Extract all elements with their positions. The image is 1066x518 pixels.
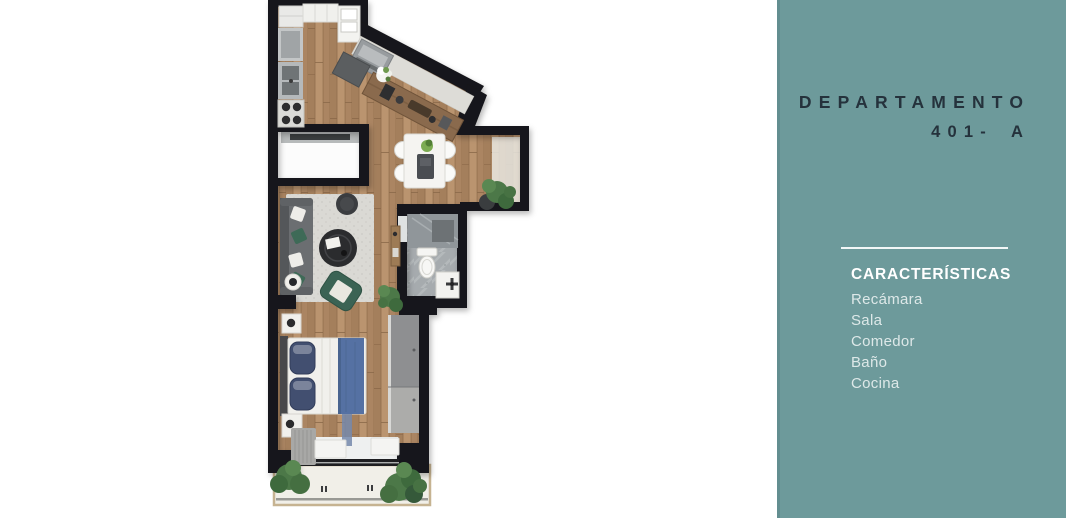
bedroom-rug bbox=[291, 428, 316, 465]
bathroom-sink bbox=[436, 272, 459, 298]
ottoman bbox=[336, 193, 358, 215]
feature-item-sala: Sala bbox=[851, 310, 1031, 331]
kitchen-cabinet-unit bbox=[338, 6, 360, 42]
headboard bbox=[280, 336, 288, 416]
info-panel: DEPARTAMENTO 401- A CARACTERÍSTICAS Recá… bbox=[777, 0, 1066, 518]
features-list: Recámara Sala Comedor Baño Cocina bbox=[851, 289, 1031, 394]
toilet bbox=[417, 248, 437, 278]
nightstand-top bbox=[282, 314, 301, 333]
floor-plan-rendering bbox=[0, 0, 777, 518]
kitchen-sink bbox=[278, 62, 303, 99]
feature-item-cocina: Cocina bbox=[851, 373, 1031, 394]
door-mat bbox=[315, 440, 346, 458]
floor-lamp bbox=[285, 274, 301, 290]
door-mat bbox=[371, 438, 399, 455]
feature-item-recamara: Recámara bbox=[851, 289, 1031, 310]
apartment-unit-number: 401- A bbox=[799, 123, 1030, 142]
shower-mat bbox=[432, 220, 454, 242]
entry-closet bbox=[277, 130, 363, 180]
page: DEPARTAMENTO 401- A CARACTERÍSTICAS Recá… bbox=[0, 0, 1066, 518]
feature-item-bano: Baño bbox=[851, 352, 1031, 373]
serving-tray bbox=[417, 154, 434, 179]
apartment-title: DEPARTAMENTO 401- A bbox=[799, 92, 1023, 142]
apartment-title-line1: DEPARTAMENTO bbox=[799, 92, 1030, 113]
features-section: CARACTERÍSTICAS Recámara Sala Comedor Ba… bbox=[841, 247, 1031, 394]
floor-plan-area bbox=[0, 0, 777, 518]
features-heading: CARACTERÍSTICAS bbox=[851, 266, 1031, 284]
hall-console bbox=[391, 226, 400, 266]
coffee-table bbox=[319, 229, 357, 267]
feature-item-comedor: Comedor bbox=[851, 331, 1031, 352]
stove bbox=[278, 100, 304, 127]
upper-cabinets bbox=[303, 4, 338, 22]
features-divider bbox=[841, 247, 1008, 249]
wardrobe bbox=[388, 315, 419, 433]
